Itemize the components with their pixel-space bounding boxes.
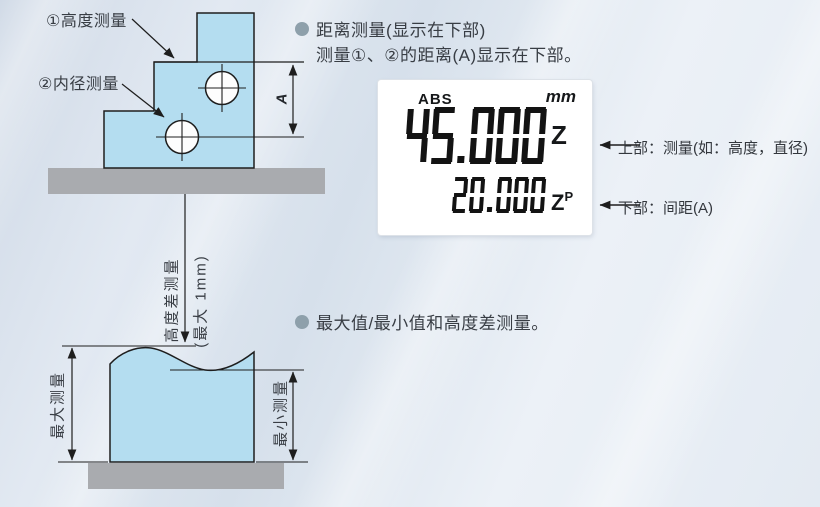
ground-base-top (48, 168, 325, 194)
lcd-upper-axis: Z (551, 122, 567, 164)
distance-section-title: 距离测量(显示在下部) (316, 16, 486, 41)
lcd-lower-value (452, 177, 547, 213)
page: ①高度测量 ②内径测量 A 高度差测量 (最大 1mm) 最大测量 最小测量 距… (0, 0, 820, 507)
distance-section-subtitle: 测量①、②的距离(A)显示在下部。 (316, 41, 582, 66)
min-measure-label: 最小测量 (270, 379, 291, 447)
leader-arrow-height (132, 19, 174, 58)
diagram-artwork (0, 0, 820, 507)
lcd-upper-value (404, 107, 547, 164)
ground-base-bottom (88, 463, 284, 489)
upper-annotation: 上部：测量(如：高度，直径) (618, 137, 808, 158)
lower-annotation: 下部：间距(A) (618, 197, 713, 218)
lcd-display: ABS mm Z ZP (378, 80, 592, 235)
lcd-lower-row: ZP (453, 177, 573, 213)
lcd-lower-axis: ZP (551, 187, 573, 213)
bore-measure-label: ②内径测量 (38, 70, 119, 94)
lcd-mode-indicator: ABS (418, 91, 453, 108)
height-diff-label: 高度差测量 (161, 257, 182, 342)
lcd-unit-indicator: mm (546, 87, 576, 107)
bullet-icon (295, 315, 309, 329)
height-measure-label: ①高度测量 (46, 7, 127, 31)
max-range-label: (最大 1mm) (190, 254, 211, 348)
minmax-section-title: 最大值/最小值和高度差测量。 (316, 309, 549, 334)
wavy-workpiece (110, 348, 254, 462)
lcd-upper-row: Z (406, 107, 567, 164)
bullet-icon (295, 22, 309, 36)
dim-A-label: A (274, 94, 291, 105)
max-measure-label: 最大测量 (47, 371, 68, 439)
